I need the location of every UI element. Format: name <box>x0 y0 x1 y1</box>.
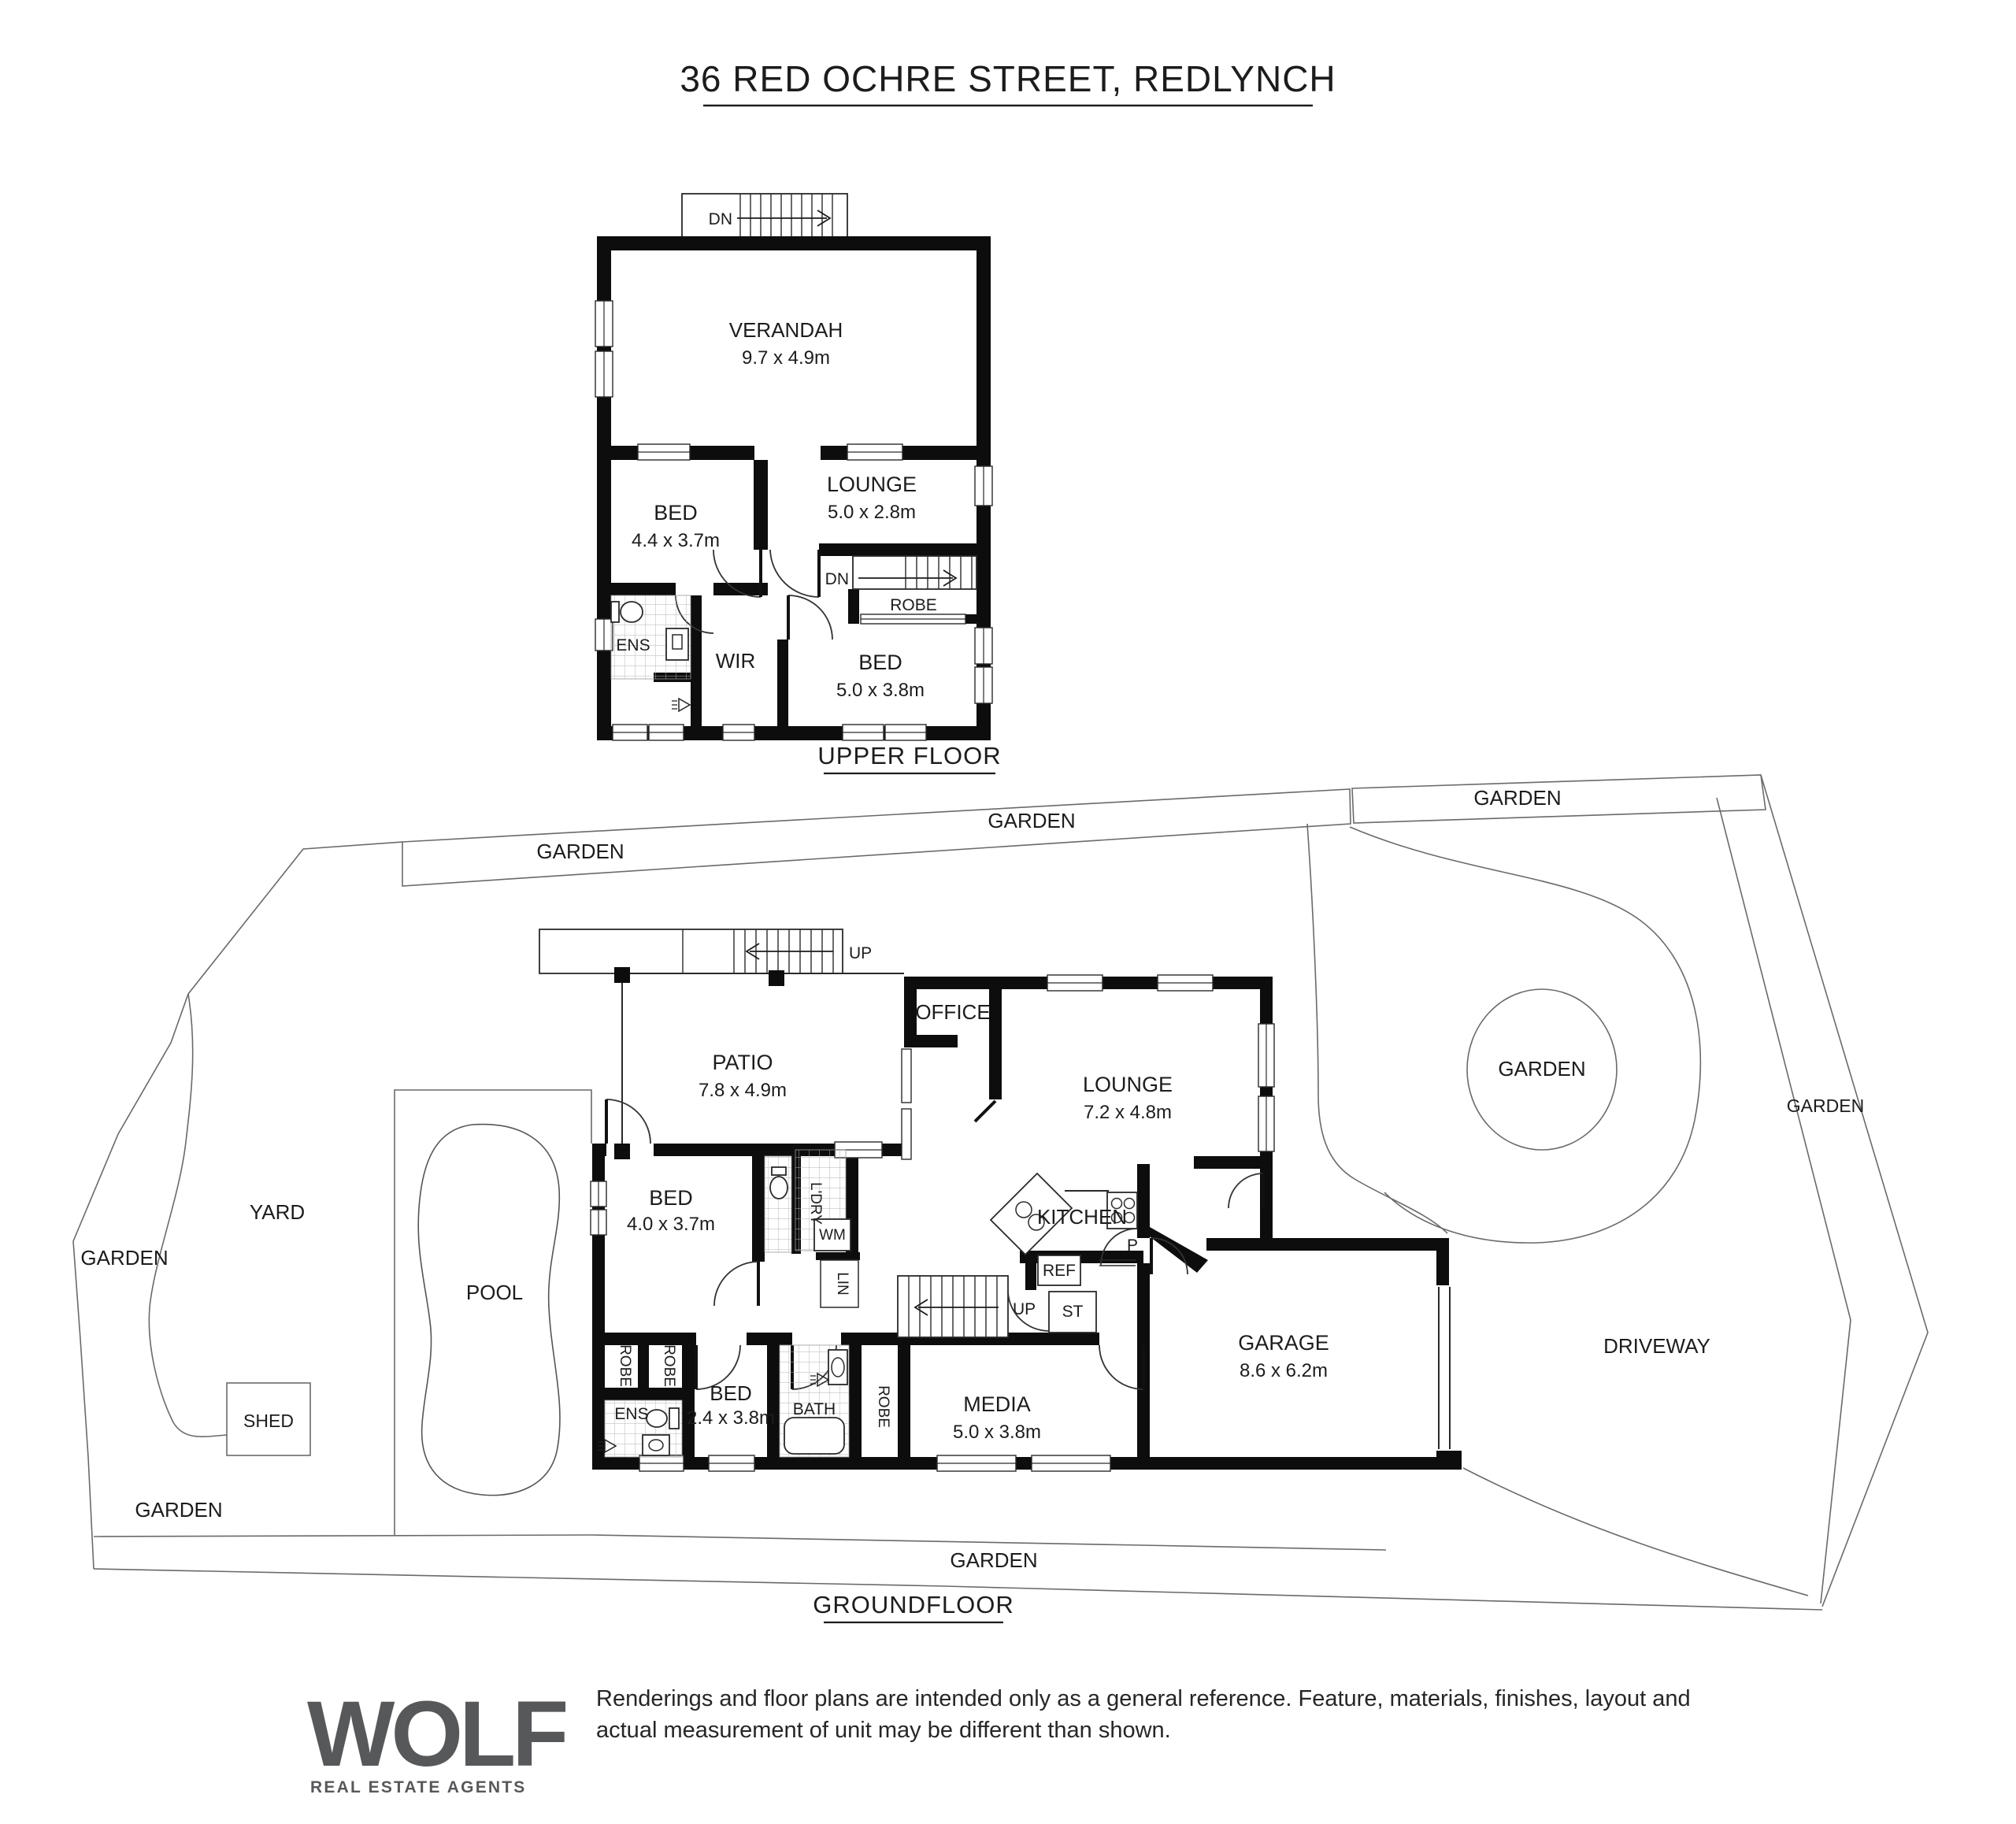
room-label-robe3: ROBE <box>875 1385 891 1428</box>
logo-wolf: WOLF <box>307 1682 565 1786</box>
room-label-bed4: BED <box>710 1381 751 1405</box>
boundary-right-inner <box>1717 798 1851 1603</box>
site-label-yard: YARD <box>250 1200 305 1224</box>
upper-stairs-top: DN <box>682 194 847 243</box>
room-dims-verandah: 9.7 x 4.9m <box>742 347 830 369</box>
site-label-garden-3: GARDEN <box>1498 1057 1585 1081</box>
ground-caption: GROUNDFLOOR <box>813 1591 1014 1622</box>
lawn-curve-right <box>1350 827 1700 1243</box>
caption-upper-floor: UPPER FLOOR <box>817 742 1001 769</box>
room-label-robe1: ROBE <box>617 1344 633 1387</box>
room-label-patio: PATIO <box>712 1051 773 1074</box>
room-label-office: OFFICE <box>915 1000 990 1024</box>
site-label-garden-0: GARDEN <box>536 840 624 863</box>
room-label-bed1: BED <box>654 501 698 525</box>
lawn-curve-left <box>1307 824 1447 1233</box>
driveway-curve <box>1463 1468 1808 1596</box>
room-label-bath: BATH <box>793 1400 836 1418</box>
room-dims-lounge-ground: 7.2 x 4.8m <box>1084 1102 1172 1123</box>
site-label-garden-7: GARDEN <box>950 1548 1037 1572</box>
upper-floor-plan: DN <box>595 194 1002 773</box>
room-dims-bed3: 4.0 x 3.7m <box>627 1214 715 1235</box>
label-linen: LIN <box>834 1272 850 1296</box>
toilet-tank <box>669 1408 679 1429</box>
room-dims-media: 5.0 x 3.8m <box>953 1422 1041 1443</box>
stairs-dn-label: DN <box>825 570 849 588</box>
room-dims-bed4: 2.4 x 3.8m <box>687 1407 775 1429</box>
room-label-wir: WIR <box>716 649 756 673</box>
disclaimer-line-1: Renderings and floor plans are intended … <box>596 1686 1691 1711</box>
site-label-garden-5: GARDEN <box>80 1246 168 1270</box>
room-dims-lounge-upper: 5.0 x 2.8m <box>828 502 916 523</box>
site-label-driveway: DRIVEWAY <box>1603 1334 1710 1358</box>
garage-door <box>1439 1287 1450 1449</box>
site-label-garden-6: GARDEN <box>135 1498 222 1522</box>
ground-stairs-mid: UP <box>898 1276 1036 1337</box>
boundary-right-outer <box>1761 775 1928 1607</box>
site-label-garden-4: GARDEN <box>1787 1096 1864 1116</box>
page-title: 36 RED OCHRE STREET, REDLYNCH <box>680 58 1336 99</box>
room-label-bed2: BED <box>858 651 902 674</box>
room-label-lounge-upper: LOUNGE <box>827 473 917 496</box>
label-fridge: REF <box>1043 1262 1076 1280</box>
pool-enclosure <box>395 1090 591 1535</box>
caption-groundfloor: GROUNDFLOOR <box>813 1591 1014 1618</box>
site-label-garden-1: GARDEN <box>988 809 1075 832</box>
toilet-icon <box>647 1410 667 1427</box>
room-label-laundry: L'DRY <box>807 1182 824 1225</box>
room-label-media: MEDIA <box>963 1392 1031 1416</box>
boundary-left <box>73 842 402 1569</box>
label-wm: WM <box>819 1227 846 1244</box>
room-label-ens-upper: ENS <box>616 636 650 654</box>
room-label-verandah: VERANDAH <box>729 318 843 342</box>
site-label-garden-2: GARDEN <box>1473 786 1561 810</box>
vanity <box>643 1435 669 1455</box>
office-door-leaf <box>975 1101 995 1121</box>
room-dims-garage: 8.6 x 6.2m <box>1240 1360 1328 1381</box>
room-label-robe2: ROBE <box>661 1344 677 1387</box>
ground-stairs-top: UP <box>539 929 872 973</box>
pool-shape <box>418 1125 560 1496</box>
title-block: 36 RED OCHRE STREET, REDLYNCH <box>680 58 1336 106</box>
vanity <box>666 628 688 660</box>
floorplan-drawing: 36 RED OCHRE STREET, REDLYNCH DN <box>0 0 2016 1824</box>
site-outline <box>73 775 1928 1610</box>
room-dims-patio: 7.8 x 4.9m <box>699 1080 787 1101</box>
garden-strip-top-left <box>402 789 1351 886</box>
room-label-lounge-ground: LOUNGE <box>1083 1073 1173 1096</box>
bathtub <box>784 1418 844 1454</box>
room-dims-bed2: 5.0 x 3.8m <box>836 680 925 701</box>
room-label-garage: GARAGE <box>1238 1331 1329 1355</box>
upper-stairs-mid: DN <box>825 556 976 589</box>
stairs-up-label: UP <box>849 944 872 962</box>
room-label-bed3: BED <box>649 1186 693 1210</box>
upper-caption: UPPER FLOOR <box>817 742 1001 773</box>
room-dims-bed1: 4.4 x 3.7m <box>632 530 720 551</box>
ground-floor-plan: UP <box>73 775 1928 1622</box>
disclaimer-line-2: actual measurement of unit may be differ… <box>596 1718 1171 1743</box>
footer: WOLF REAL ESTATE AGENTS Renderings and f… <box>307 1682 1691 1796</box>
site-label-shed: SHED <box>243 1411 294 1431</box>
room-label-ens-ground: ENS <box>614 1405 648 1423</box>
label-store: ST <box>1062 1303 1084 1321</box>
logo-subtext: REAL ESTATE AGENTS <box>310 1778 527 1796</box>
room-label-robe-upper: ROBE <box>890 596 937 614</box>
room-label-kitchen: KITCHEN <box>1037 1205 1127 1229</box>
toilet-icon <box>621 602 643 622</box>
toilet-tank <box>611 602 619 622</box>
floorplan-page: 36 RED OCHRE STREET, REDLYNCH DN <box>0 0 2016 1824</box>
site-label-pool: POOL <box>466 1281 523 1304</box>
toilet-tank <box>772 1167 786 1175</box>
stairs-dn-label: DN <box>709 210 732 228</box>
label-pantry: P <box>1127 1236 1138 1255</box>
boundary-bottom-top-edge <box>94 1535 1386 1550</box>
toilet-icon <box>770 1177 787 1199</box>
